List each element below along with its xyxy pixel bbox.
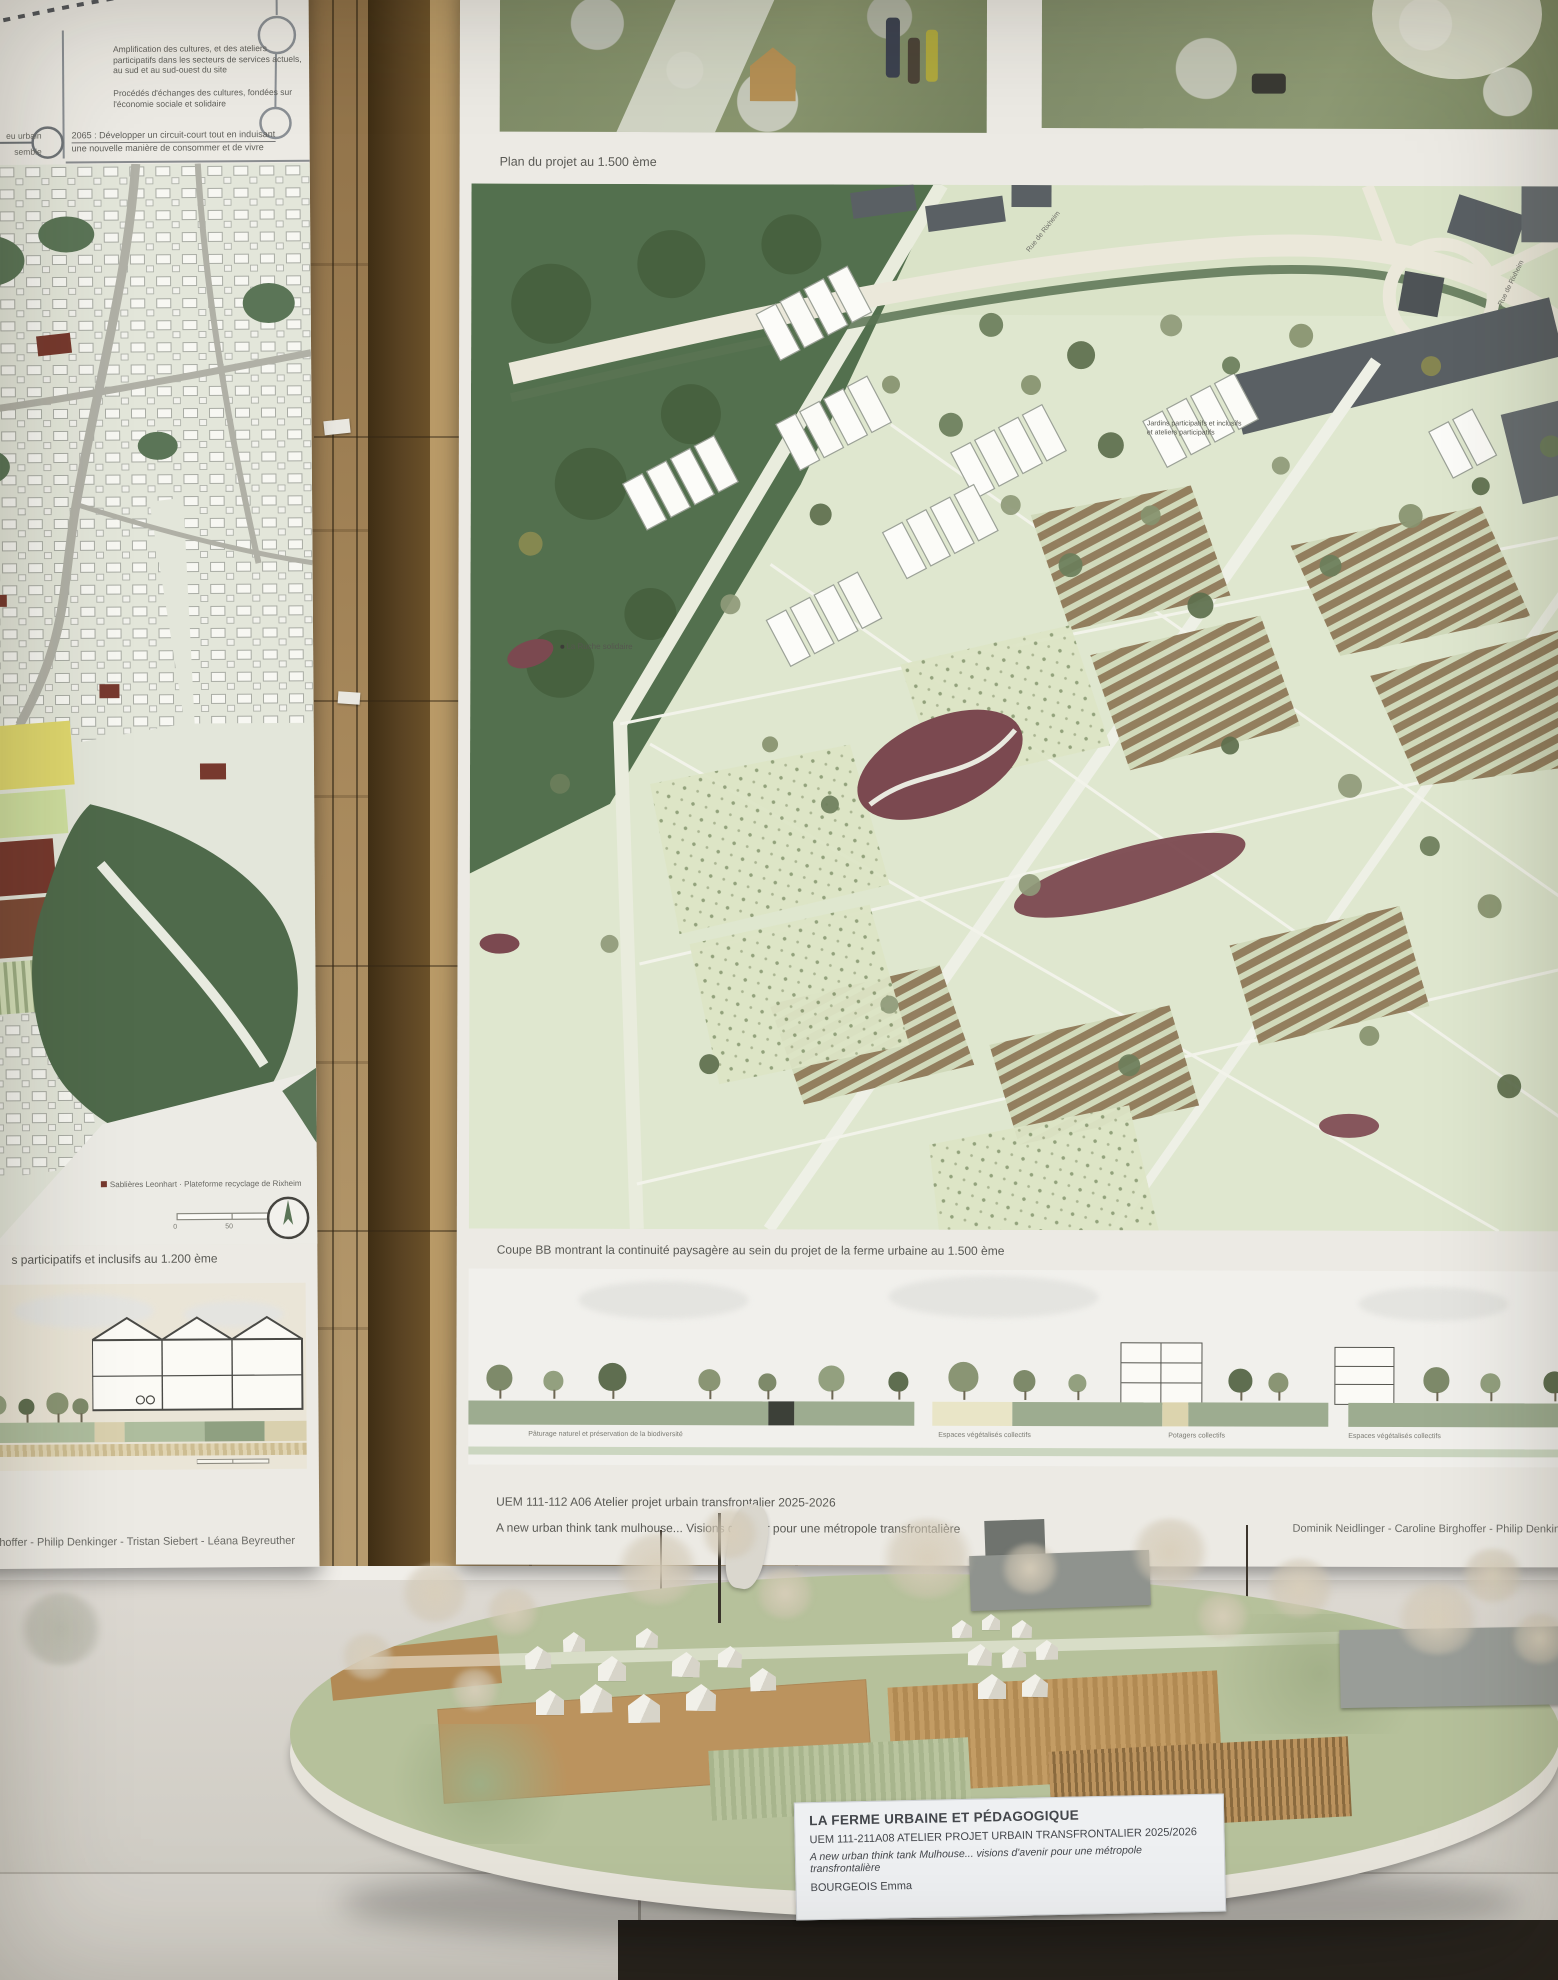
ground-segment <box>768 1401 794 1425</box>
wall-gap-panel <box>430 0 460 1568</box>
section-tree <box>1068 1374 1086 1392</box>
rixheim-masterplan-map <box>0 163 317 1247</box>
section-building-outline <box>1334 1347 1394 1405</box>
footer-course-line: UEM 111-112 A06 Atelier projet urbain tr… <box>496 1495 836 1511</box>
section-tree <box>698 1369 720 1391</box>
section-tree <box>1013 1370 1035 1392</box>
plan-caption: Plan du projet au 1.500 ème <box>500 155 657 171</box>
section-tree <box>0 1395 6 1415</box>
scale-tick: 50 <box>225 1223 233 1232</box>
garden-illustration-2 <box>1042 0 1558 129</box>
ground-segment <box>468 1401 768 1426</box>
model-house <box>536 1690 564 1715</box>
scale-tick: 0 <box>173 1224 177 1233</box>
cloud <box>889 1276 1099 1319</box>
model-house <box>580 1683 613 1713</box>
model-house <box>563 1632 585 1652</box>
plan-label-ruche: La Ruche solidaire <box>560 642 632 652</box>
garden-illustration-1 <box>500 0 987 133</box>
milestone-line2: une nouvelle manière de consommer et de … <box>72 142 264 153</box>
section-tree <box>888 1372 908 1392</box>
section-tree <box>758 1373 776 1391</box>
ground-segment <box>125 1422 205 1443</box>
map-dot-icon <box>560 645 564 649</box>
model-subtitle-line: A new urban think tank Mulhouse... visio… <box>810 1843 1210 1875</box>
section-ground-band <box>0 1421 307 1443</box>
section-label: Potagers collectifs <box>1168 1432 1225 1441</box>
section-tree-row <box>0 1380 95 1423</box>
model-house <box>672 1652 701 1678</box>
cloud <box>579 1281 749 1319</box>
left-poster-credits: Birghoffer - Philip Denkinger - Tristan … <box>0 1535 319 1551</box>
section-tree <box>1543 1371 1558 1393</box>
figure-person <box>886 18 900 78</box>
coupe-caption: Coupe BB montrant la continuité paysagèr… <box>497 1243 1397 1260</box>
column-line <box>1160 1343 1161 1403</box>
timeline-milestone: 2065 : Développer un circuit-court tout … <box>72 129 302 155</box>
section-tree <box>1423 1367 1449 1393</box>
ground-segment <box>0 1422 95 1443</box>
figure-person <box>908 38 920 84</box>
section-tree <box>543 1371 563 1391</box>
model-house <box>1022 1674 1048 1698</box>
section-tree <box>1268 1373 1288 1393</box>
insect-hotel <box>750 47 796 101</box>
figure-group <box>1252 74 1286 94</box>
jardins-label-line1: Jardins participatifs et inclusifs <box>1147 420 1242 427</box>
model-title: LA FERME URBAINE ET PÉDAGOGIQUE <box>809 1805 1209 1828</box>
section-tree-row <box>468 1347 1558 1404</box>
site-label: Sablières Leonhart · Plateforme recyclag… <box>101 1179 313 1190</box>
ground-segment <box>1188 1402 1328 1426</box>
model-label-card: LA FERME URBAINE ET PÉDAGOGIQUE UEM 111-… <box>794 1794 1226 1921</box>
model-house <box>598 1656 626 1681</box>
section-tree <box>948 1362 978 1392</box>
illustration-clearing <box>1372 0 1542 79</box>
section-label: Espaces végétalisés collectifs <box>938 1432 1031 1441</box>
ground-segment <box>1012 1402 1162 1426</box>
ground-segment <box>932 1402 1012 1426</box>
model-house <box>750 1668 777 1692</box>
floor-line <box>1335 1366 1393 1367</box>
ground-segment <box>794 1401 914 1425</box>
diagram-edge-label: semble <box>0 147 42 158</box>
section-tree <box>598 1363 626 1391</box>
ground-segment <box>265 1421 307 1441</box>
section-label: Pâturage naturel et préservation de la b… <box>528 1431 683 1440</box>
section-hatch-band <box>0 1443 307 1457</box>
section-tree <box>486 1365 512 1391</box>
section-tree <box>72 1398 88 1414</box>
left-section-drawing <box>0 1283 307 1471</box>
plan-label-jardins: Jardins participatifs et inclusifs et at… <box>1147 420 1287 438</box>
wall-gap-shadow <box>368 0 430 1568</box>
model-house <box>628 1694 660 1723</box>
ground-segment <box>95 1422 125 1442</box>
ground-gap <box>1328 1403 1348 1427</box>
dried-plant-sprig <box>18 1592 104 1666</box>
wall-seam <box>314 700 460 702</box>
wall-seam <box>314 965 460 967</box>
grid-wire <box>332 0 334 1568</box>
model-house <box>1012 1620 1032 1638</box>
grid-wire <box>356 0 358 1568</box>
jardins-label-line2: et ateliers participatifs <box>1147 429 1215 436</box>
photo-scene: Amplification des cultures, et des ateli… <box>0 0 1558 1980</box>
left-map-caption: s participatifs et inclusifs au 1.200 èm… <box>11 1251 311 1268</box>
section-tree <box>46 1392 68 1414</box>
site-label-text: Sablières Leonhart · Plateforme recyclag… <box>110 1179 302 1189</box>
section-building-outline <box>1120 1342 1202 1404</box>
ground-segment <box>205 1421 265 1441</box>
north-arrow-icon <box>265 1195 311 1241</box>
right-poster: Plan du projet au 1.500 ème <box>456 0 1558 1567</box>
model-house <box>978 1674 1006 1699</box>
diagram-edge-label: eu urbain <box>0 131 42 142</box>
section-label: Espaces végétalisés collectifs <box>1348 1433 1441 1442</box>
wall-seam <box>314 436 460 438</box>
section-tree <box>18 1399 34 1415</box>
ground-segment <box>1348 1403 1558 1428</box>
coupe-bb-section: Pâturage naturel et préservation de la b… <box>468 1269 1558 1468</box>
floor-line <box>1335 1384 1393 1385</box>
cloud <box>1359 1287 1509 1321</box>
urban-farm-plan <box>469 184 1558 1232</box>
model-house <box>968 1644 993 1666</box>
section-scale-ticks <box>197 1457 277 1468</box>
ground-segment <box>1162 1402 1188 1426</box>
diagram-note: Procédés d'échanges des cultures, fondée… <box>113 87 311 110</box>
left-poster: Amplification des cultures, et des ateli… <box>0 0 320 1569</box>
figure-person <box>926 30 938 82</box>
model-house <box>1036 1640 1058 1660</box>
section-baseline-band <box>468 1447 1558 1458</box>
section-tree <box>818 1365 844 1391</box>
wall-clip-tab <box>323 419 350 436</box>
building-section-drawing <box>92 1309 305 1414</box>
ruche-label-text: La Ruche solidaire <box>566 642 632 651</box>
model-house <box>982 1614 1000 1630</box>
model-author: BOURGEOIS Emma <box>810 1874 1210 1894</box>
architectural-model: LA FERME URBAINE ET PÉDAGOGIQUE UEM 111-… <box>280 1528 1558 1958</box>
model-house <box>1002 1646 1027 1668</box>
model-house <box>718 1646 743 1668</box>
model-house <box>525 1646 552 1670</box>
model-house <box>952 1620 972 1638</box>
model-house <box>686 1684 716 1712</box>
section-tree <box>1480 1373 1500 1393</box>
wall-clip-tab <box>338 691 361 705</box>
wall-seam <box>314 1230 460 1232</box>
ground-gap <box>914 1402 932 1426</box>
model-house <box>636 1628 658 1648</box>
section-tree <box>1228 1369 1252 1393</box>
diagram-note: Amplification des cultures, et des ateli… <box>113 43 311 76</box>
site-marker-icon <box>101 1181 107 1187</box>
section-ground-band <box>468 1401 1558 1428</box>
